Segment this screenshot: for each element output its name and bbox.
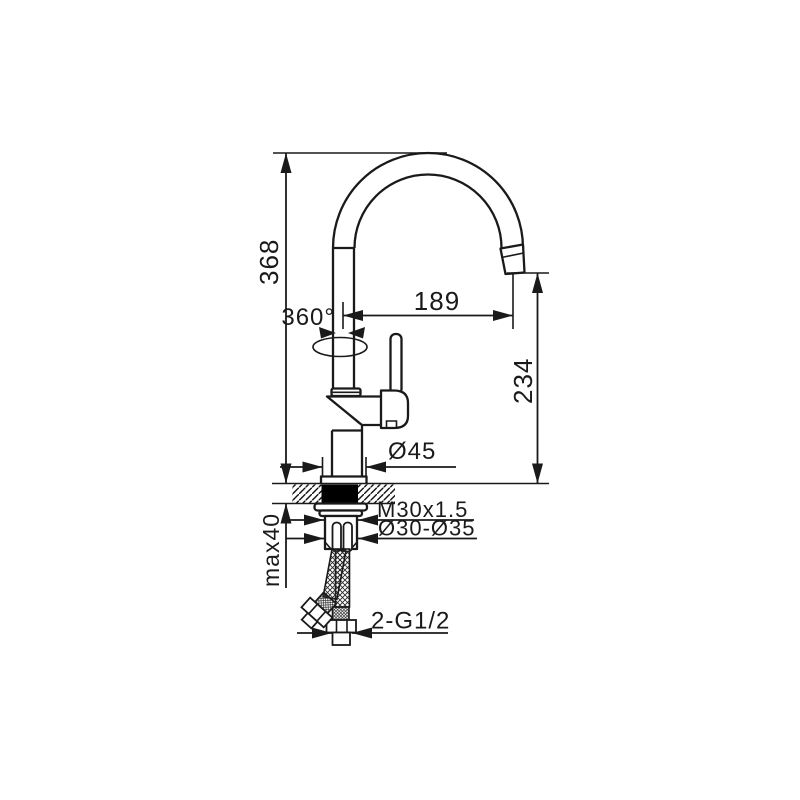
spout-arc xyxy=(333,153,523,248)
faucet-technical-drawing-canvas: 368 360° 189 234 Ø45 M30x1.5 xyxy=(0,0,800,800)
dim-total-height-label: 368 xyxy=(254,239,284,285)
dim-spout-reach-label: 189 xyxy=(414,286,460,316)
rotation-ellipse xyxy=(313,338,367,357)
dim-base-diameter-label: Ø45 xyxy=(388,438,436,465)
supply-connection-label: 2-G1/2 xyxy=(371,608,450,635)
mounting-hardware xyxy=(315,504,368,552)
dimension-spout-reach: 189 xyxy=(343,273,513,329)
dimension-max-thickness: max40 xyxy=(258,504,292,589)
hose-crimp-collar xyxy=(333,607,350,620)
lever-handle xyxy=(391,334,402,394)
dimension-swivel-angle: 360° xyxy=(281,304,335,331)
dim-swivel-label: 360° xyxy=(281,304,335,331)
mixer-body xyxy=(327,389,408,429)
spout-outlet xyxy=(501,245,525,275)
dim-outlet-height-label: 234 xyxy=(508,358,538,404)
hose-hex-nut xyxy=(327,620,357,633)
hose-thread-stub xyxy=(333,633,351,646)
rotation-arrow-right xyxy=(348,327,365,339)
faucet-technical-drawing: 368 360° 189 234 Ø45 M30x1.5 xyxy=(0,0,800,800)
rotation-indicator xyxy=(313,327,367,357)
hole-diameter-label: Ø30-Ø35 xyxy=(378,516,476,541)
countertop-hatch-left xyxy=(292,485,322,504)
dimension-base-diameter: Ø45 xyxy=(280,438,456,478)
max-thickness-label: max40 xyxy=(258,513,284,587)
cartridge-housing xyxy=(381,391,408,429)
mounting-gasket xyxy=(322,485,359,503)
base-flange xyxy=(321,425,367,484)
